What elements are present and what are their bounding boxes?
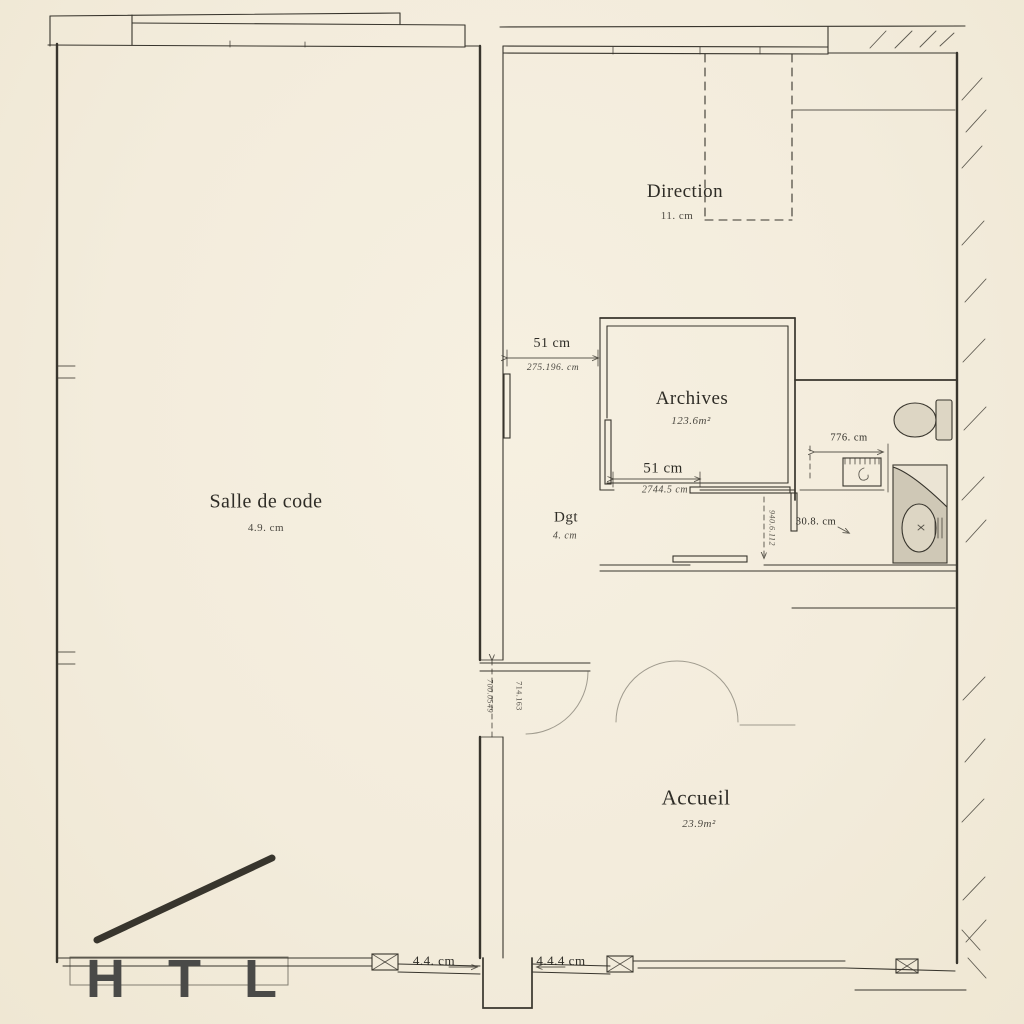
floor-plan-drawing (0, 0, 1024, 1024)
entrance-pier (483, 958, 532, 1008)
direction-dashed-partition (705, 54, 955, 220)
archives-label: Archives (656, 388, 729, 410)
door-swing-arc-hall (526, 672, 588, 734)
left-wall-marks (57, 366, 75, 664)
htl-logo: H T L (86, 948, 291, 1010)
central-wall (480, 46, 590, 958)
direction-area: 11. cm (661, 210, 694, 222)
outer-walls (48, 13, 965, 966)
reception-desk-arc (616, 661, 738, 722)
dimension-wc-vertical: 940.6.112 (768, 510, 777, 546)
toilet-fixture (894, 400, 952, 440)
dimension-wc-width: 776. cm (830, 433, 867, 444)
logo-green-line (97, 858, 272, 940)
panel-fixture (843, 458, 881, 486)
dgt-label: Dgt (554, 510, 578, 527)
column-box-right (607, 956, 633, 972)
accueil-label: Accueil (662, 786, 731, 811)
salle-de-code-label: Salle de code (209, 491, 322, 514)
dimension-sink-offset: 30.8. cm (796, 517, 836, 528)
dimension-hall-door-b: 714.163 (515, 681, 524, 711)
sliding-door-leaf-archives-left (605, 420, 611, 484)
dimension-corridor-detail: 275.196. cm (527, 363, 579, 373)
column-box-bottom-right (896, 959, 918, 973)
dimension-corridor-width: 51 cm (533, 336, 570, 352)
dgt-area: 4. cm (553, 531, 577, 542)
floor-plan: Salle de code 4.9. cm Direction 11. cm A… (0, 0, 1024, 1024)
wc-zone (795, 380, 957, 563)
sliding-door-leaf-dgt (673, 556, 747, 562)
dimension-entrance-left: 4.4. cm (413, 953, 455, 969)
direction-label: Direction (647, 181, 723, 203)
dimension-archives-detail: 2744.5 cm (642, 485, 688, 496)
entrance-wall (372, 954, 966, 1008)
accueil-area: 23.9m² (682, 818, 716, 830)
salle-de-code-area: 4.9. cm (248, 522, 284, 534)
dimension-entrance-right: 4.4.4 cm (536, 953, 585, 969)
sliding-door-leaf-corridor (504, 374, 510, 438)
sink-fixture (893, 465, 947, 563)
column-box-left (372, 954, 398, 970)
dimension-archives-opening: 51 cm (643, 461, 683, 478)
archives-area: 123.6m² (671, 415, 711, 427)
dimension-hall-door-a: 700.0549 (486, 679, 495, 713)
